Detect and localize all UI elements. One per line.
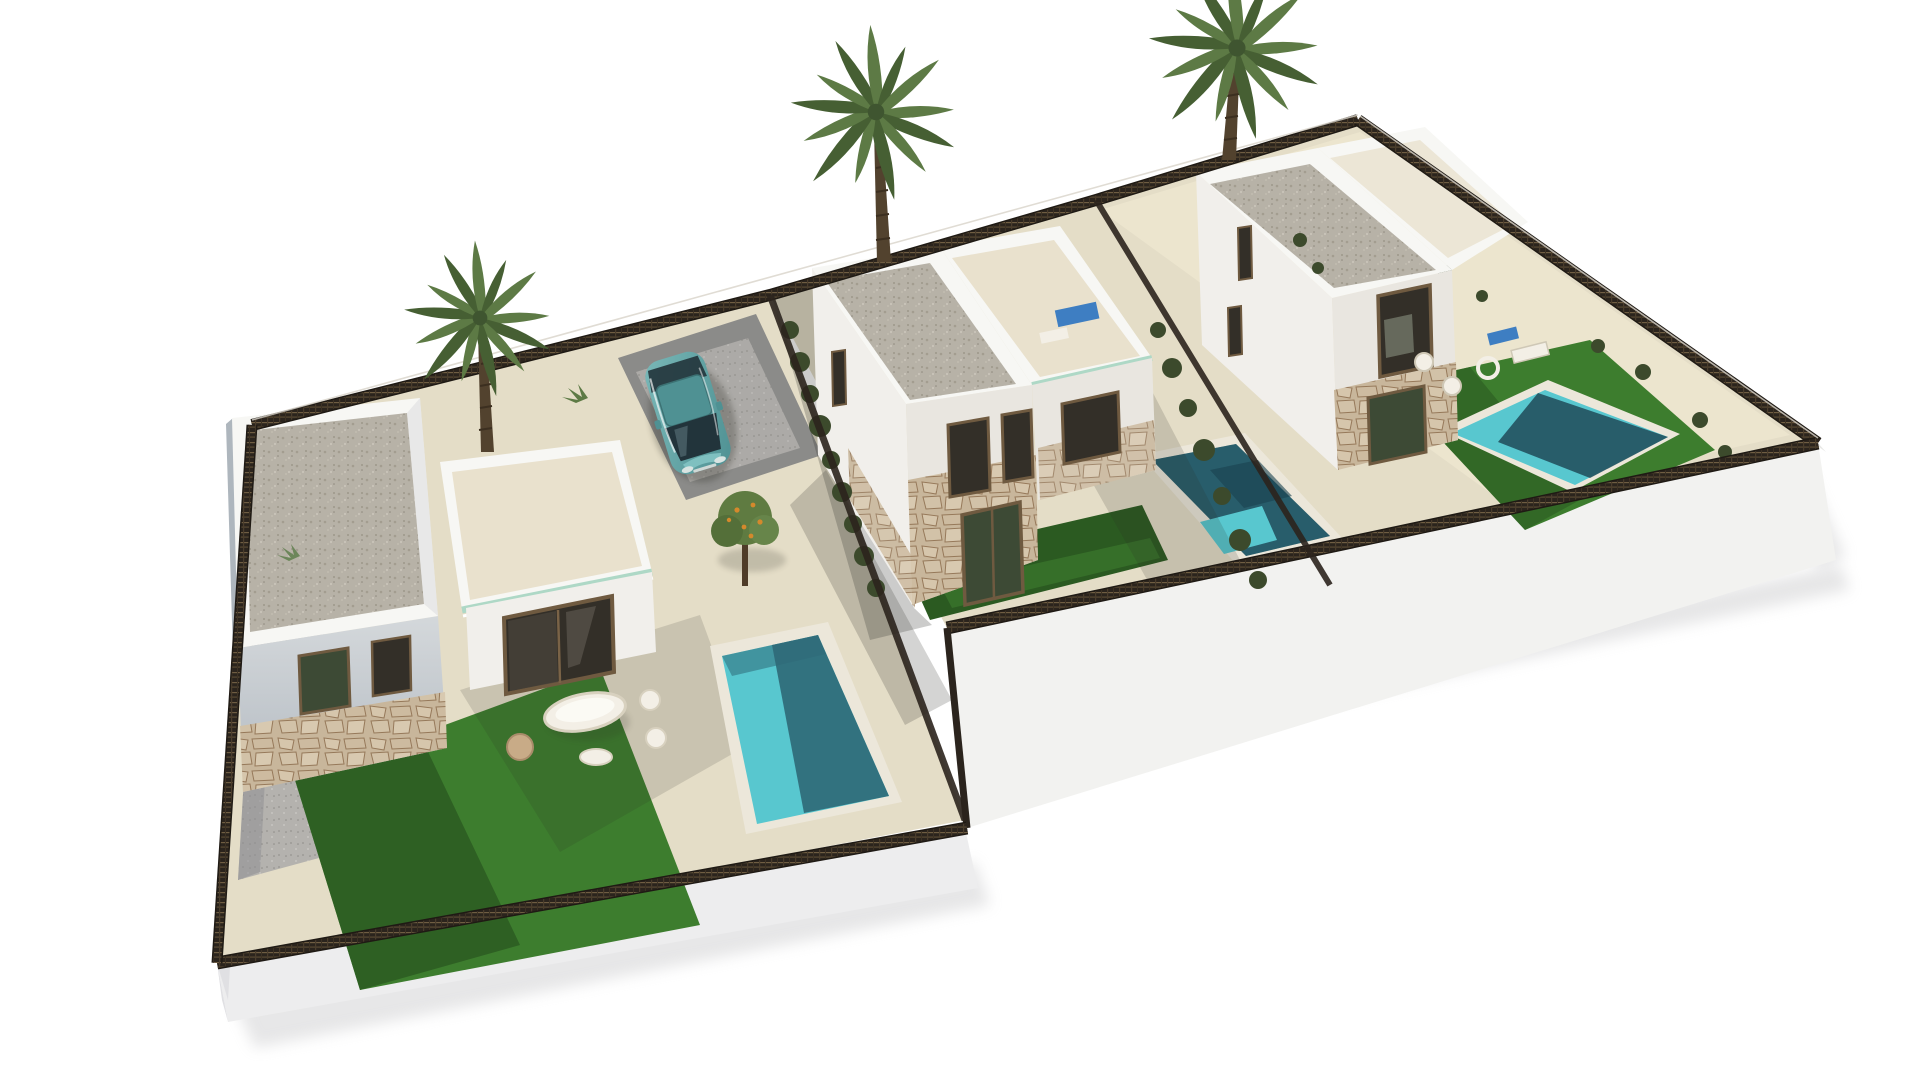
architectural-render [0,0,1920,1080]
coffee-table [580,749,612,765]
pouf [646,728,666,748]
pouf [640,690,660,710]
villa-1-gravel-roof [246,413,424,632]
palm-tree-2 [790,25,956,262]
chair [1415,353,1433,371]
chair [1443,377,1461,395]
render-canvas [0,0,1920,1080]
pouf [507,734,533,760]
